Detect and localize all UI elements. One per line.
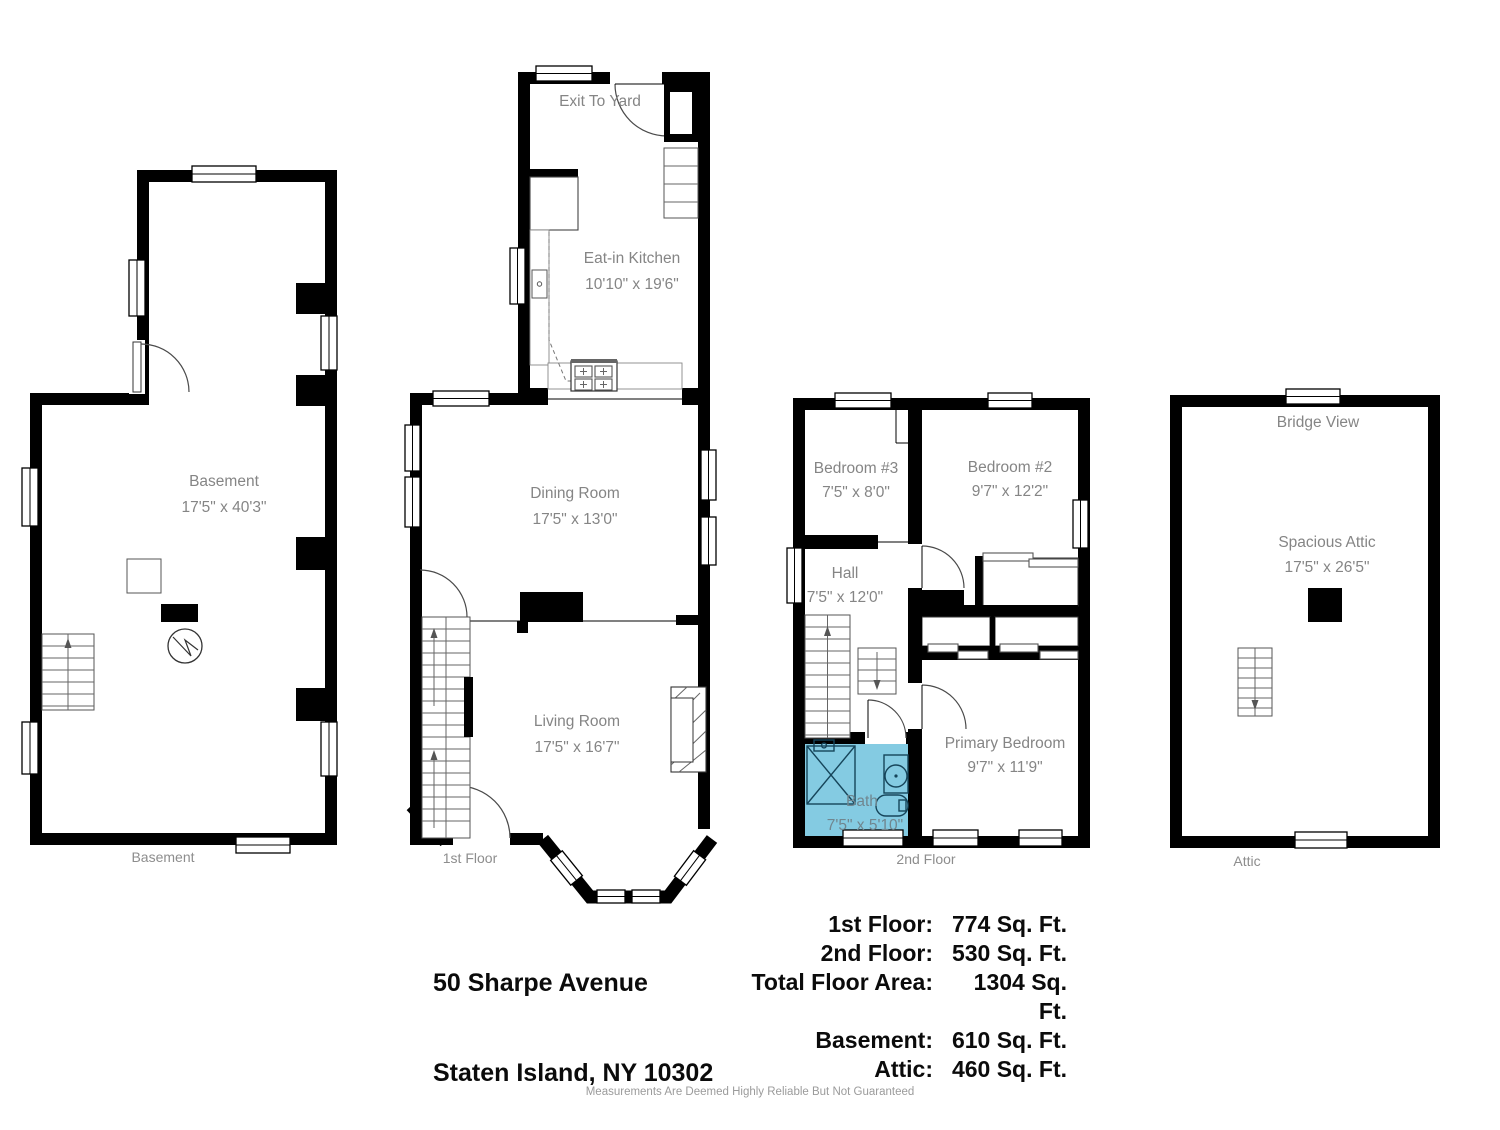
- hall-dims: 7'5" x 12'0": [807, 589, 883, 606]
- chimney: [671, 687, 706, 772]
- kitchen-room-label: Eat-in Kitchen: [584, 250, 681, 267]
- attic-room-dims: 17'5" x 26'5": [1284, 559, 1369, 576]
- living-room-label: Living Room: [534, 713, 620, 730]
- hall-label: Hall: [832, 565, 859, 582]
- basement-windows: [22, 166, 337, 853]
- area-summary-table: 1st Floor: 774 Sq. Ft. 2nd Floor: 530 Sq…: [747, 910, 1067, 1084]
- bedroom3-wall: [805, 535, 878, 549]
- basement-room-label: Basement: [189, 473, 259, 490]
- basement-floor-label: Basement: [131, 849, 194, 865]
- disclaimer-text: Measurements Are Deemed Highly Reliable …: [0, 1086, 1500, 1098]
- first-floor-floorplan: Exit To Yard Eat-in Kitchen 10'10" x 19'…: [405, 66, 716, 903]
- bedroom2-door: [922, 546, 964, 588]
- area-row-value: 460 Sq. Ft.: [943, 1055, 1067, 1084]
- primary-door-opening: [906, 683, 924, 729]
- main-stairs: [422, 617, 473, 838]
- living-room-dims: 17'5" x 16'7": [534, 739, 619, 756]
- attic-room-label: Spacious Attic: [1278, 534, 1376, 551]
- hall-primary-wall: [908, 612, 922, 683]
- dining-room-label: Dining Room: [530, 485, 620, 502]
- attic-floorplan: Bridge View Spacious Attic 17'5" x 26'5"…: [1170, 389, 1440, 869]
- dining-door: [420, 570, 467, 617]
- primary-bedroom-door: [922, 685, 966, 729]
- exit-to-yard-label: Exit To Yard: [559, 93, 641, 110]
- address-line2: Staten Island, NY 10302: [433, 1058, 713, 1088]
- bath-top-wall-stub: [906, 732, 922, 744]
- fireplace: [462, 592, 698, 633]
- bedroom3-dims: 7'5" x 8'0": [822, 484, 890, 501]
- bay-opening: [543, 829, 714, 848]
- area-row-label: Attic:: [747, 1055, 943, 1084]
- hall-stairs: [805, 615, 896, 738]
- second-floor-label: 2nd Floor: [896, 851, 955, 867]
- equipment-block: [161, 604, 198, 622]
- bedroom2-door-opening: [906, 544, 924, 588]
- dining-room-dims: 17'5" x 13'0": [532, 511, 617, 528]
- kitchen-room-dims: 10'10" x 19'6": [585, 276, 679, 293]
- closets: [920, 553, 1078, 660]
- bath-right-wall: [908, 729, 922, 836]
- area-row-value: 1304 Sq. Ft.: [943, 968, 1067, 1026]
- bridge-view-label: Bridge View: [1277, 414, 1360, 431]
- area-row-value: 774 Sq. Ft.: [943, 910, 1067, 939]
- area-row-label: 1st Floor:: [747, 910, 943, 939]
- area-row-label: Total Floor Area:: [747, 968, 943, 1026]
- primary-bedroom-label: Primary Bedroom: [945, 735, 1066, 752]
- bedroom-divider-wall: [908, 410, 922, 541]
- bath-label: Bath: [846, 793, 878, 810]
- basement-floorplan: Basement 17'5" x 40'3" Basement: [22, 166, 337, 865]
- bedroom3-label: Bedroom #3: [814, 460, 898, 477]
- bay-window: [543, 839, 712, 903]
- address-line1: 50 Sharpe Avenue: [433, 968, 713, 998]
- area-row-label: Basement:: [747, 1026, 943, 1055]
- area-row-value: 610 Sq. Ft.: [943, 1026, 1067, 1055]
- stove-symbol: [571, 359, 617, 391]
- primary-bedroom-dims: 9'7" x 11'9": [967, 759, 1042, 776]
- basement-door: [129, 340, 189, 394]
- bedroom3-closet: [896, 410, 908, 443]
- rear-landing: [664, 84, 698, 218]
- area-row-value: 530 Sq. Ft.: [943, 939, 1067, 968]
- bath-dims: 7'5" x 5'10": [827, 817, 903, 834]
- bath-door: [868, 700, 906, 738]
- area-row-label: 2nd Floor:: [747, 939, 943, 968]
- bedroom2-label: Bedroom #2: [968, 459, 1052, 476]
- attic-stairs: [1238, 648, 1272, 716]
- attic-chimney: [1308, 588, 1342, 622]
- first-floor-label: 1st Floor: [443, 850, 498, 866]
- attic-floor-label: Attic: [1233, 853, 1260, 869]
- floorplan-page: { "colors": { "wall": "#000000", "bath_f…: [0, 0, 1500, 1125]
- water-heater-symbol: [168, 629, 202, 663]
- second-floor-floorplan: Bedroom #3 7'5" x 8'0" Bedroom #2 9'7" x…: [787, 393, 1090, 867]
- attic-walls: [1170, 395, 1440, 848]
- furnace-symbol: [127, 559, 161, 593]
- bedroom2-dims: 9'7" x 12'2": [972, 483, 1048, 500]
- basement-room-dims: 17'5" x 40'3": [181, 499, 266, 516]
- basement-stairs: [42, 634, 94, 710]
